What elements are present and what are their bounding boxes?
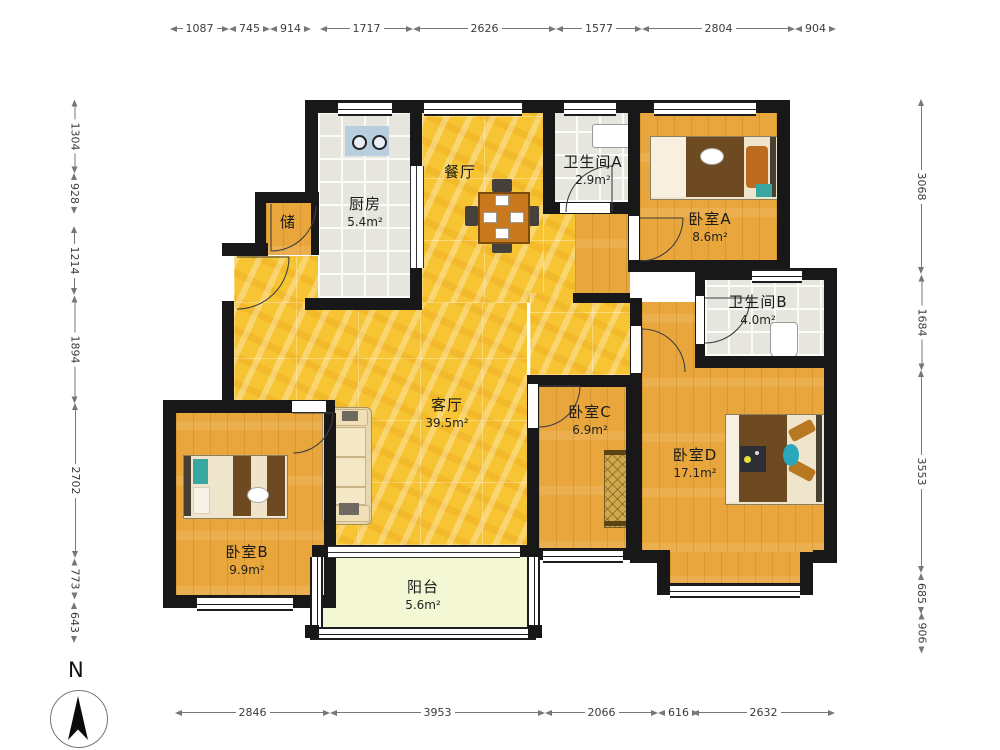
room-label-kitchen: 厨房 5.4m² <box>330 195 400 230</box>
bedD-bay-floor <box>670 552 800 585</box>
room-label-bedA: 卧室A 8.6m² <box>675 210 745 245</box>
room-area: 17.1m² <box>655 466 735 482</box>
bedD-bay-window <box>670 584 800 598</box>
bedA-window <box>654 101 756 116</box>
bedA-robe <box>746 146 768 188</box>
dim-left-0: 1304 <box>69 100 82 174</box>
bedB-white-pillow <box>193 487 210 514</box>
dim-right-0: 3068 <box>915 99 928 274</box>
dim-right-3: 685 <box>915 573 928 612</box>
corridorA-floor <box>575 214 630 303</box>
bedB-teal-pillow <box>193 459 208 484</box>
room-area: 6.9m² <box>555 423 625 439</box>
kitchen-sliding-door <box>410 166 424 268</box>
dim-bottom-4: 2632 <box>692 706 835 719</box>
dim-top-4: 2626 <box>413 22 556 35</box>
bedB-headboard <box>184 456 191 516</box>
wall <box>573 293 630 303</box>
room-name: 厨房 <box>330 195 400 215</box>
bedB-stripe <box>251 456 267 516</box>
dim-right-4: 906 <box>916 613 929 665</box>
room-name: 客厅 <box>412 396 482 416</box>
room-label-bedC: 卧室C 6.9m² <box>555 403 625 438</box>
dim-top-3: 1717 <box>320 22 413 35</box>
bedA-sheet <box>651 137 686 197</box>
bathB-window <box>752 269 802 283</box>
sofa-cushion-1 <box>332 427 366 457</box>
wall <box>527 375 642 387</box>
bedA-door-opening <box>629 216 639 260</box>
wall <box>626 375 642 555</box>
bedD-tray-dot-yellow <box>744 456 751 463</box>
room-label-bedD: 卧室D 17.1m² <box>655 446 735 481</box>
dining-chair-left <box>465 206 478 226</box>
room-area: 9.9m² <box>212 563 282 579</box>
bathA-window <box>564 101 616 116</box>
room-area: 4.0m² <box>712 313 804 329</box>
dining-chair-top <box>492 179 512 192</box>
room-name: 卫生间A <box>553 153 633 173</box>
wall <box>630 550 660 563</box>
bedD-tray-dot-white <box>755 451 759 455</box>
bathA-door-opening <box>560 203 610 213</box>
room-area: 5.6m² <box>388 598 458 614</box>
bedD-headboard <box>816 415 822 502</box>
dining-plate-top <box>495 195 509 206</box>
stove-burner-left <box>352 135 367 150</box>
entry-floor <box>234 256 318 303</box>
hall-floor-2 <box>530 293 630 375</box>
bedC-window <box>543 549 623 563</box>
room-area: 5.4m² <box>330 215 400 231</box>
sofa-throw-bottom <box>339 503 359 515</box>
dim-top-1: 745 <box>229 22 270 35</box>
stove-burner-right <box>372 135 387 150</box>
room-label-living: 客厅 39.5m² <box>412 396 482 431</box>
room-area: 8.6m² <box>675 230 745 246</box>
dim-right-1: 1684 <box>916 275 929 371</box>
bathB-door-opening <box>696 296 704 344</box>
dim-top-7: 904 <box>795 22 844 35</box>
bedA-plate <box>700 148 724 165</box>
dim-left-6: 643 <box>68 602 81 639</box>
wall <box>777 100 790 272</box>
room-name: 卧室B <box>212 543 282 563</box>
bedA-nightstand <box>756 184 772 197</box>
balcony-post-left <box>305 625 319 638</box>
compass-north-label: N <box>68 658 84 682</box>
sofa-throw-top <box>342 411 358 421</box>
wall <box>824 268 837 563</box>
dining-plate-bottom <box>495 228 509 239</box>
room-label-bathB: 卫生间B 4.0m² <box>712 293 804 328</box>
balcony-window-left <box>310 557 323 627</box>
dim-top-6: 2804 <box>642 22 795 35</box>
balcony-window-bottom <box>310 627 536 640</box>
dim-top-2: 914 <box>270 22 320 35</box>
hall-floor-1 <box>543 214 575 303</box>
dim-top-5: 1577 <box>556 22 642 35</box>
dim-bottom-2: 2066 <box>545 706 658 719</box>
dim-top-0: 1087 <box>170 22 229 35</box>
dining-plate-left <box>483 212 497 223</box>
bedB-window <box>197 596 293 611</box>
bedD-teal-cushion <box>783 444 799 466</box>
room-name: 卫生间B <box>712 293 804 313</box>
wall <box>800 552 813 595</box>
dim-right-2: 3553 <box>915 370 928 573</box>
bedC-door-opening <box>528 384 538 428</box>
room-name: 餐厅 <box>430 163 490 183</box>
dining-window <box>424 101 522 116</box>
dim-left-3: 1894 <box>69 296 82 404</box>
dim-left-2: 1214 <box>68 226 81 295</box>
room-label-storage: 储 <box>274 213 302 233</box>
dim-left-4: 2702 <box>69 403 82 558</box>
bedB-plate <box>247 487 269 503</box>
wall <box>222 301 234 413</box>
balcony-sliding-door <box>328 546 520 558</box>
bathA-washer <box>592 124 632 148</box>
wall <box>324 413 336 608</box>
dim-left-1: 928 <box>68 173 81 226</box>
room-name: 阳台 <box>388 578 458 598</box>
balcony-window-right <box>527 557 540 627</box>
sofa-cushion-2 <box>332 457 366 487</box>
room-name: 卧室A <box>675 210 745 230</box>
room-name: 卧室C <box>555 403 625 423</box>
bedA-blanket <box>686 137 744 197</box>
dim-left-5: 773 <box>69 559 82 603</box>
room-area: 2.9m² <box>553 173 633 189</box>
corridor-door-opening <box>631 326 641 373</box>
wall <box>163 400 176 608</box>
wall <box>305 100 318 202</box>
room-label-dining: 餐厅 <box>430 163 490 183</box>
wall <box>311 192 319 255</box>
dim-bottom-0: 2846 <box>175 706 330 719</box>
dim-bottom-3: 616 <box>658 706 692 719</box>
wall <box>695 356 837 368</box>
kitchen-window <box>338 101 392 116</box>
bedB-door-opening <box>292 401 326 412</box>
dim-bottom-1: 3953 <box>330 706 545 719</box>
room-label-bedB: 卧室B 9.9m² <box>212 543 282 578</box>
dining-plate-right <box>510 212 524 223</box>
wall <box>222 243 268 256</box>
room-label-balcony: 阳台 5.6m² <box>388 578 458 613</box>
room-area: 39.5m² <box>412 416 482 432</box>
wall <box>813 550 837 563</box>
room-label-bathA: 卫生间A 2.9m² <box>553 153 633 188</box>
room-name: 储 <box>274 213 302 233</box>
wall <box>305 298 422 310</box>
floorplan-canvas: 厨房 5.4m² 餐厅 卫生间A 2.9m² 卧室A 8.6m² 储 卫生间B … <box>0 0 1000 750</box>
balcony-post-right <box>528 625 542 638</box>
room-name: 卧室D <box>655 446 735 466</box>
corridorD-floor <box>642 302 695 378</box>
